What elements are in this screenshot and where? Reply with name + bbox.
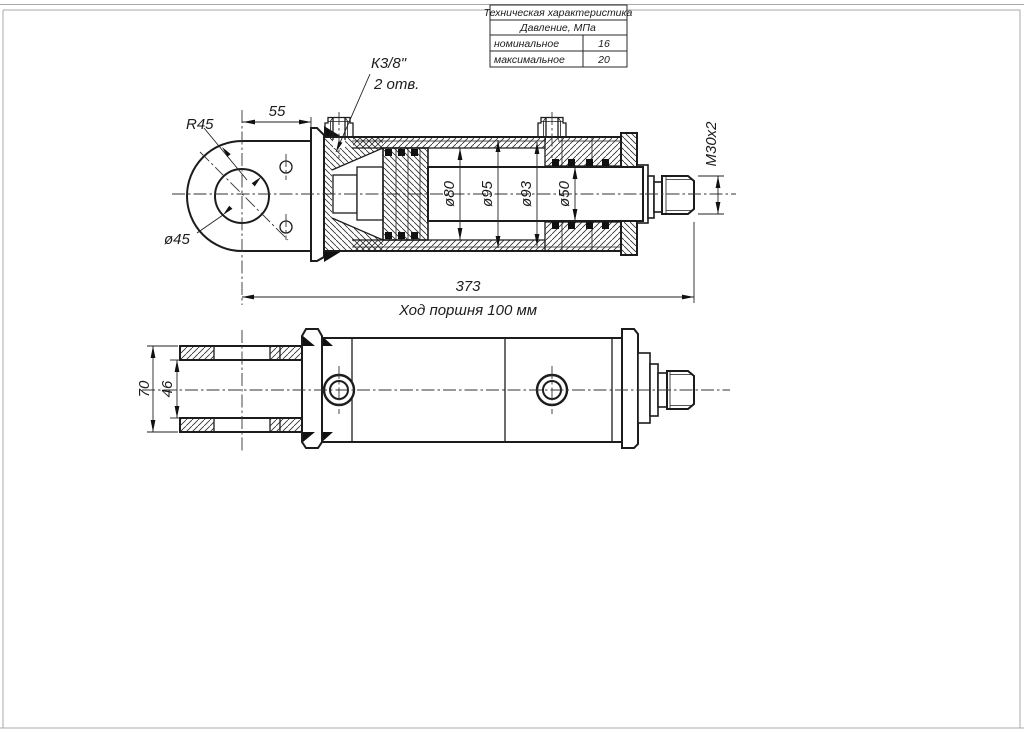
front-flange-top [622,329,694,448]
dim-373-label: 373 [455,278,481,295]
rod-end-thread [648,176,694,218]
port-holes-label: 2 отв. [373,76,419,93]
table-row-label: номинальное [494,38,559,50]
table-subtitle: Давление, МПа [519,22,596,34]
dim-d95-label: ø95 [479,180,496,207]
fork-eye-plate [180,346,302,432]
dim-70-label: 70 [136,380,153,397]
sheet-frame [0,5,1024,729]
dim-d45: ø45 [164,177,261,248]
dim-d93-label: ø93 [518,180,535,207]
dim-r45-label: R45 [186,116,214,133]
dim-d50-label: ø50 [556,180,573,207]
stroke-note: Ход поршня 100 мм [398,302,537,319]
engineering-drawing-canvas: Техническая характеристика Давление, МПа… [0,0,1024,732]
dim-46: 46 [159,360,180,418]
table-row-label: максимальное [494,54,565,66]
dim-m30: M30x2 [698,121,724,214]
dim-55-label: 55 [269,103,286,120]
rear-flange [311,128,324,261]
dim-55: 55 [242,103,311,132]
drawing-sheet: Техническая характеристика Давление, МПа… [0,0,1024,732]
table-row-value: 20 [597,54,610,66]
dim-d80-label: ø80 [441,180,458,207]
spec-table: Техническая характеристика Давление, МПа… [484,5,633,67]
dim-m30-label: M30x2 [703,121,720,167]
bottom-view: 70 46 [136,329,730,452]
dim-46-label: 46 [159,380,176,397]
table-row-value: 16 [598,38,610,50]
table-title: Техническая характеристика [484,7,633,19]
port-thread-label: К3/8" [371,55,407,72]
main-view: 55 R45 ø45 К3/8" 2 отв. ø80 [164,55,736,319]
dim-d45-label: ø45 [164,231,191,248]
